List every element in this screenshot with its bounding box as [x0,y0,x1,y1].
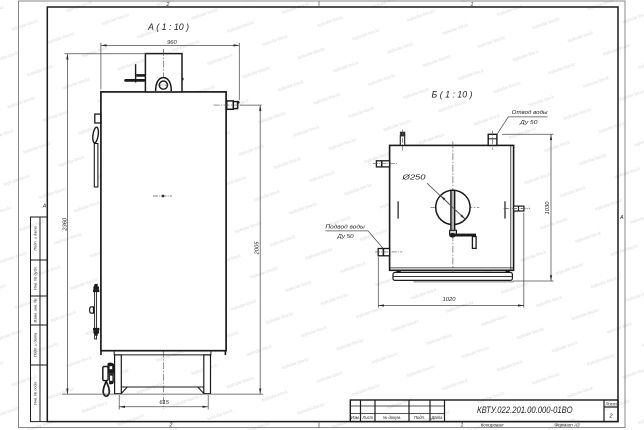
svg-text:Дата: Дата [430,415,443,420]
svg-text:Формат А3: Формат А3 [554,423,580,428]
svg-text:№ докум.: № докум. [383,415,401,420]
svg-text:Ø250: Ø250 [401,173,426,182]
svg-text:КВТУ.022.201.00.000-01ВО: КВТУ.022.201.00.000-01ВО [477,405,573,416]
svg-text:Инв. № дубл.: Инв. № дубл. [33,266,38,290]
svg-text:2: 2 [169,423,173,429]
svg-text:А ( 1 : 10 ): А ( 1 : 10 ) [147,22,189,32]
svg-text:A: A [619,215,624,221]
svg-text:960: 960 [167,40,177,46]
svg-text:2360: 2360 [63,217,69,232]
svg-text:Подп.: Подп. [414,415,425,420]
svg-text:Ду 50: Ду 50 [336,234,353,240]
svg-text:Подп. и дата: Подп. и дата [33,225,38,250]
svg-text:Подвод воды: Подвод воды [325,225,364,231]
svg-text:615: 615 [159,400,169,406]
svg-text:Отвод воды: Отвод воды [512,110,548,116]
svg-text:2: 2 [166,2,170,8]
svg-text:Инв. № подл.: Инв. № подл. [33,381,38,405]
svg-text:1020: 1020 [443,297,457,303]
svg-text:Взам. инв. №: Взам. инв. № [33,298,38,323]
svg-text:Лист: Лист [604,402,617,407]
svg-text:Ду 50: Ду 50 [519,120,537,126]
svg-text:Б ( 1 : 10 ): Б ( 1 : 10 ) [432,90,473,100]
svg-text:Лист: Лист [361,415,373,420]
svg-text:A: A [42,204,47,210]
svg-text:Изм.: Изм. [351,415,360,420]
svg-text:Подп. и дата: Подп. и дата [33,332,38,357]
svg-text:1: 1 [471,2,474,8]
svg-text:1: 1 [461,423,464,429]
svg-text:Копировал: Копировал [481,423,504,428]
svg-text:1030: 1030 [545,201,551,215]
svg-text:2005: 2005 [254,241,260,256]
